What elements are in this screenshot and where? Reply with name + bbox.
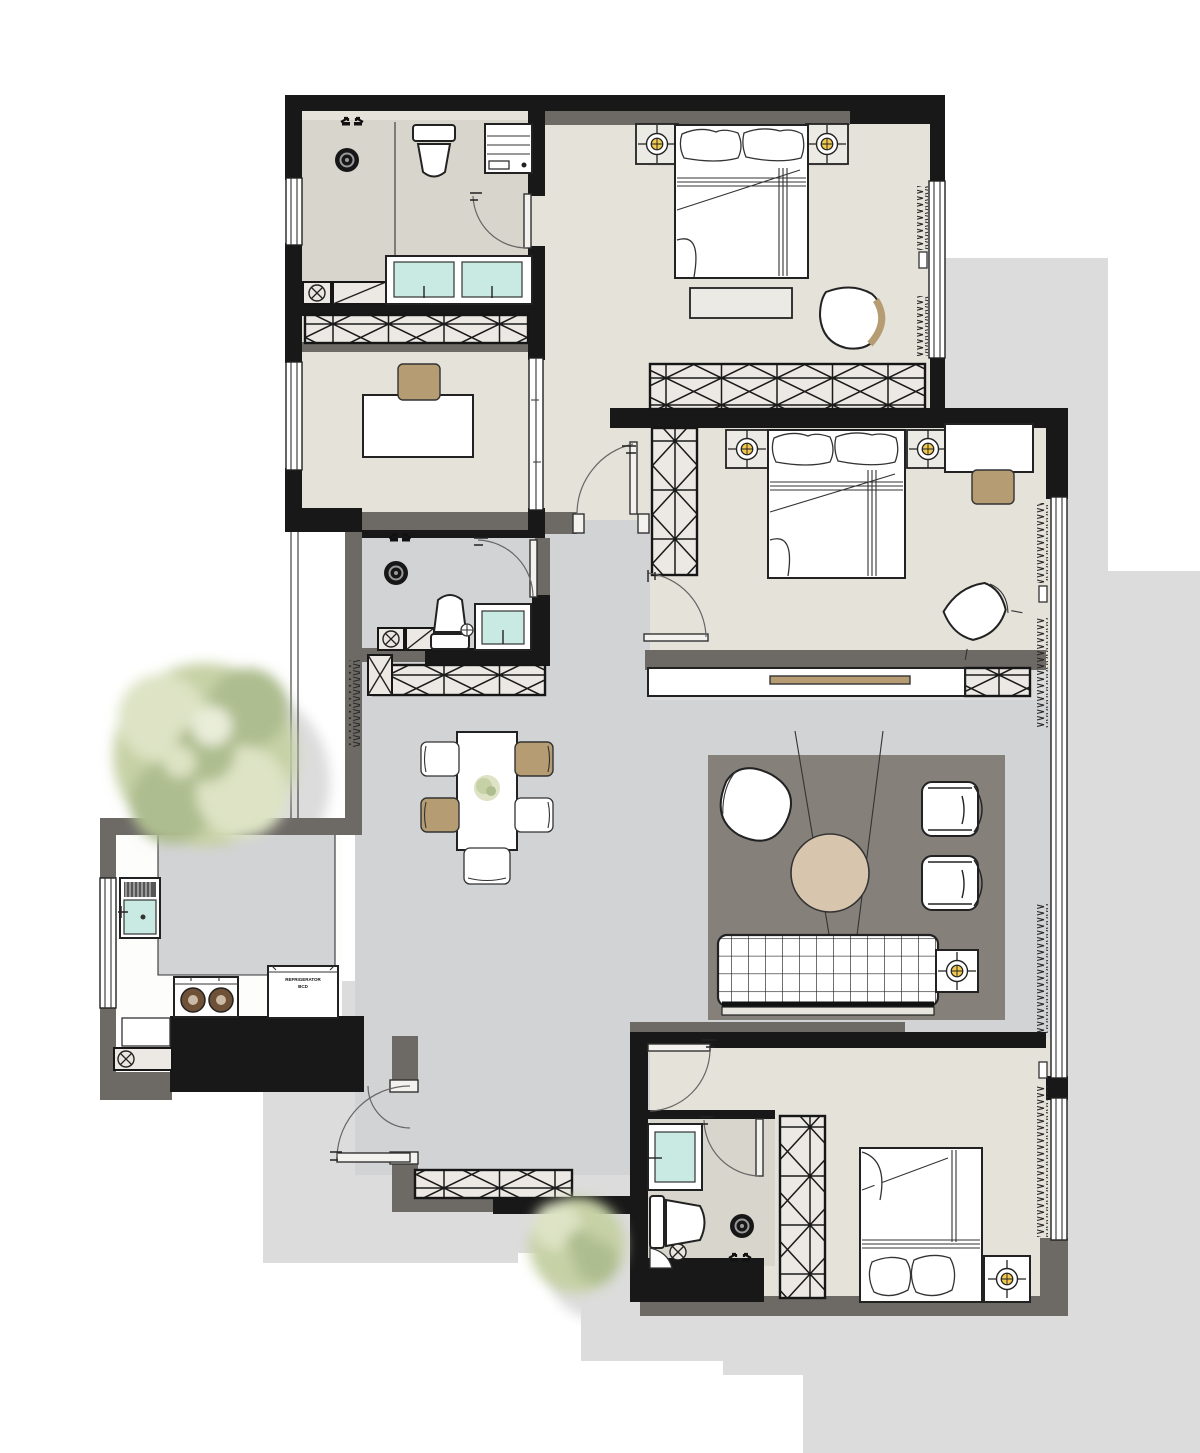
- bath1-corner-cabinet: [303, 282, 386, 304]
- bed-double: [675, 125, 808, 278]
- nightstand: [806, 124, 848, 164]
- pillow: [869, 1257, 910, 1295]
- side-chair: [922, 782, 982, 836]
- floor-drain-icon: [670, 1244, 686, 1260]
- bedroom3-wardrobe: [780, 1116, 825, 1298]
- refrigerator: REFRIGERATOR BCD: [268, 966, 338, 1018]
- hall-wall-cabinet: [368, 655, 392, 695]
- sink: [475, 604, 531, 650]
- window-bath1-left: [286, 178, 302, 245]
- vanity-double-sink: [386, 256, 532, 304]
- floor-plan: REFRIGERATOR BCD: [0, 0, 1200, 1453]
- stove: [174, 977, 238, 1017]
- shower-drain-icon: [384, 561, 408, 585]
- bed-double: [768, 430, 905, 578]
- window-band-right-upper: [1051, 497, 1067, 1078]
- window-band-right-lower: [1051, 1098, 1067, 1240]
- curtain-coil: [1037, 618, 1048, 728]
- dining-chair: [515, 798, 553, 832]
- curtain-coil: [349, 660, 360, 748]
- shower-drain-icon: [730, 1214, 754, 1238]
- curtain-handle: [1039, 586, 1047, 602]
- dining-chair: [421, 742, 459, 776]
- dining-chair: [515, 742, 553, 776]
- curtain-handle: [1039, 1062, 1047, 1078]
- window-kitchen-left: [100, 878, 116, 1008]
- nightstand: [636, 124, 678, 164]
- window-bedroom1-right: [929, 181, 945, 358]
- desk-chair: [972, 470, 1014, 504]
- bedroom1-wardrobe: [650, 364, 925, 409]
- bath2-corner-cabinet: [378, 628, 434, 650]
- tv-side-cabinet: [965, 668, 1030, 696]
- pillow: [743, 129, 804, 161]
- washing-machine: [485, 124, 532, 173]
- pillow: [911, 1255, 954, 1295]
- bed-bench: [690, 288, 792, 318]
- hall-sideboard: [373, 665, 545, 695]
- ceiling-light-box: [936, 950, 978, 992]
- tv-console: [648, 668, 965, 696]
- desk: [363, 395, 473, 457]
- floor-kitchen: [158, 832, 335, 975]
- fridge-label-line2: BCD: [298, 984, 308, 989]
- curtain-coil: [1037, 903, 1048, 1033]
- sliding-door-study: [529, 358, 543, 510]
- curtain-handle: [919, 252, 927, 268]
- nightstand: [984, 1256, 1030, 1302]
- curtain-coil: [1037, 503, 1048, 583]
- shoe-cabinet: [415, 1170, 572, 1198]
- table-plant: [474, 775, 500, 801]
- sink: [648, 1124, 702, 1190]
- tree-small: [529, 1197, 625, 1293]
- side-chair: [922, 856, 982, 910]
- nightstand: [907, 430, 949, 468]
- pillow: [772, 433, 833, 465]
- curtain-coil: [917, 296, 928, 356]
- desk-chair: [398, 364, 440, 400]
- dining-chair: [421, 798, 459, 832]
- dining-chair: [464, 848, 510, 884]
- fridge-label-line1: REFRIGERATOR: [285, 977, 321, 982]
- bedroom2-wardrobe: [652, 428, 697, 575]
- tree-large: [113, 663, 297, 847]
- shower-drain-icon: [335, 148, 359, 172]
- window-study-left: [286, 362, 302, 470]
- armchair: [820, 287, 882, 348]
- laundry-closet: [305, 315, 528, 343]
- bed-single: [860, 1148, 982, 1302]
- pillow: [835, 433, 898, 465]
- pillow: [680, 129, 741, 161]
- coffee-table: [791, 834, 869, 912]
- kitchen-corner-cabinet: [114, 1018, 172, 1070]
- kitchen-sink: [118, 878, 160, 938]
- curtain-coil: [917, 186, 928, 250]
- curtain-coil: [1037, 1085, 1048, 1237]
- nightstand: [726, 430, 768, 468]
- sofa: [718, 935, 938, 1015]
